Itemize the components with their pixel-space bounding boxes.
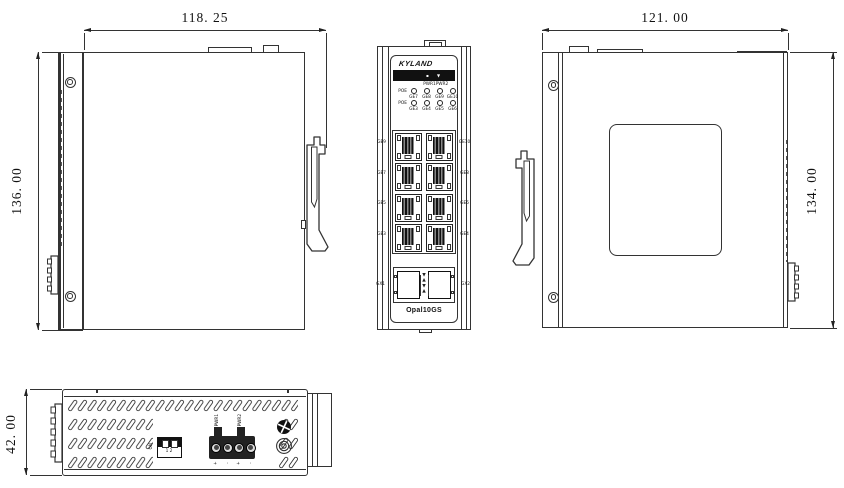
din-rail-clip [512,146,542,272]
panel-screw [548,80,559,91]
right-view-height-dim-line [833,52,834,328]
dim-arrow-icon [542,28,549,32]
pwr1-terminal-label: PWR1 [216,409,220,431]
dim-extension-line [30,389,62,390]
engineering-drawing-canvas: 118. 25 136. 00 [0,0,844,488]
dip-switch: 1 2 [157,437,182,458]
polarity-label: - [226,460,230,467]
dim-extension-line [542,33,543,50]
dip-on-label: ON [150,441,154,451]
dip-switch-lever [171,440,178,448]
back-edge-line [783,53,784,327]
dip-positions-label: 1 2 [158,450,180,454]
dim-arrow-icon [831,321,835,328]
right-view-height-dim-label: 134. 00 [804,161,820,221]
top-mounting-tab [569,46,589,53]
terminal-screw [246,443,256,453]
label-recess [609,124,722,256]
vent-edge-dashes [786,140,788,262]
dim-arrow-icon [24,468,28,475]
dim-extension-line [788,33,789,50]
terminal-screw [211,443,221,453]
bottom-view: 42. 00 [0,360,360,488]
dim-extension-line [30,475,62,476]
bottom-view-height-dim-line [26,389,27,475]
terminal-connector-edge [49,403,63,463]
top-mounting-tab [597,49,643,53]
din-rail-profile-line [312,394,313,466]
terminal-connector-edge [787,262,800,302]
bottom-view-height-dim-label: 42. 00 [3,404,19,464]
panel-edge-line [558,53,559,327]
right-view-width-dim-label: 121. 00 [605,10,725,26]
terminal-screw [234,443,244,453]
power-terminal-block [209,436,255,459]
din-rail-bottom-profile [307,393,332,467]
dim-extension-line [790,52,837,53]
top-step-line [737,51,787,52]
right-side-view: 121. 00 134. 00 [0,0,844,345]
dim-arrow-icon [24,389,28,396]
dim-arrow-icon [781,28,788,32]
terminal-screw [223,443,233,453]
dim-arrow-icon [831,52,835,59]
dim-extension-line [790,328,837,329]
polarity-label: + [214,460,218,467]
right-view-width-dim-line [542,30,788,31]
dip-switch-lever [162,440,169,448]
vent-slots [64,392,306,472]
polarity-label: + [237,460,241,467]
panel-edge-line [562,53,563,327]
polarity-label: - [249,460,253,467]
panel-screw [548,292,559,303]
ground-screw-icon [275,418,293,458]
pwr2-terminal-label: PWR2 [239,409,243,431]
din-rail-profile-line [317,394,318,466]
